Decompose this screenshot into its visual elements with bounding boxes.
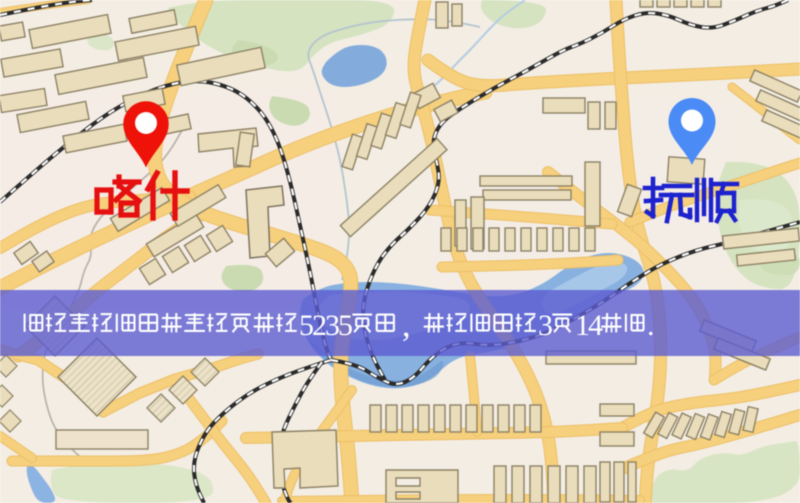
svg-text:3: 3 bbox=[538, 309, 553, 342]
svg-text:4: 4 bbox=[588, 309, 603, 342]
svg-text:.: . bbox=[647, 309, 655, 342]
svg-text:5: 5 bbox=[338, 309, 353, 342]
svg-text:,: , bbox=[402, 307, 411, 344]
